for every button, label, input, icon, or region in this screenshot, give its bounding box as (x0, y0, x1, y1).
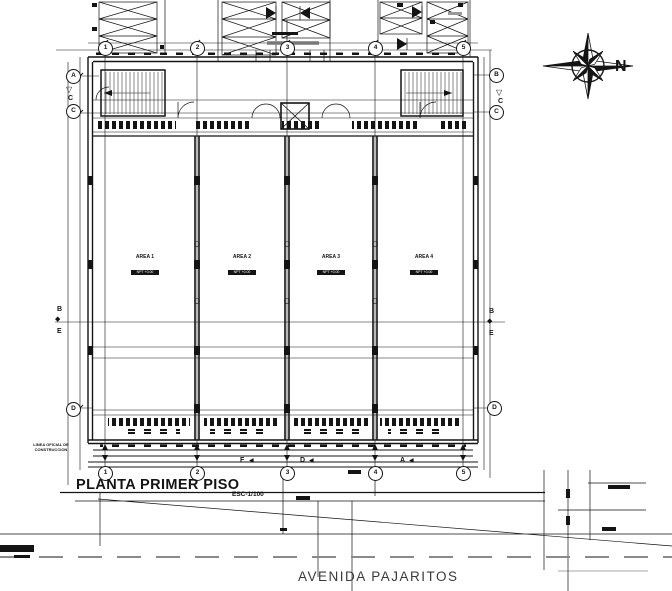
room-name: AREA 3 (309, 254, 353, 260)
plan-scale: ESC-1/100 (232, 491, 264, 498)
room-level-tag: NPT +0.00 (317, 270, 345, 275)
margin-note-line2: CONSTRUCCION (35, 447, 68, 452)
section-arrow-icon: ◀ (249, 458, 254, 465)
grid-bubble-label: 2 (196, 44, 200, 51)
grid-bubble-row-c-right: C (489, 105, 504, 120)
door-arcs (96, 87, 436, 118)
grid-bubble-label: 3 (286, 44, 290, 51)
grid-bubble-label: D (492, 404, 497, 411)
grid-bubble-row-d-left: D (66, 402, 81, 417)
grid-bubble-label: 5 (462, 469, 466, 476)
grid-bubble-top-2: 2 (190, 41, 205, 56)
section-letter-f: F (240, 457, 244, 464)
street-name: AVENIDA PAJARITOS (298, 569, 459, 584)
grid-bubble-label: D (71, 405, 76, 412)
grid-bubble-bottom-3: 3 (280, 466, 295, 481)
section-diamond-icon: ◆ (487, 318, 492, 325)
section-triangle-icon: ▽ (66, 86, 72, 94)
grid-bubble-label: 1 (104, 469, 108, 476)
grid-bubble-top-3: 3 (280, 41, 295, 56)
section-letter-e-right: E (489, 330, 494, 337)
grid-bubble-row-c-left: C (66, 104, 81, 119)
grid-bubble-label: 5 (462, 44, 466, 51)
section-arrow-icon: ◀ (409, 458, 414, 465)
grid-bubble-label: 2 (196, 469, 200, 476)
room-label-area-2: AREA 2 NPT +0.00 (220, 254, 264, 278)
floor-plan-sheet: 1 2 3 4 5 1 2 3 4 5 A C D B C D ▽ C ▽ C … (0, 0, 672, 591)
section-letter-d: D (300, 457, 305, 464)
grid-bubble-label: C (494, 108, 499, 115)
grid-bubble-top-4: 4 (368, 41, 383, 56)
grid-bubble-top-5: 5 (456, 41, 471, 56)
grid-bubble-bottom-5: 5 (456, 466, 471, 481)
grid-bubble-row-a: A (66, 69, 81, 84)
section-letter-e-left: E (57, 328, 62, 335)
section-letter-c-right: C (498, 98, 503, 105)
section-letter-c-left: C (68, 95, 73, 102)
stairs-right (401, 70, 463, 116)
margin-note: LINEA OFICIAL DE CONSTRUCCION (28, 443, 74, 452)
grid-bubble-row-b: B (489, 68, 504, 83)
room-label-area-1: AREA 1 NPT +0.00 (123, 254, 167, 278)
fixtures-hatch (96, 121, 468, 448)
room-name: AREA 2 (220, 254, 264, 260)
room-level-tag: NPT +0.00 (228, 270, 256, 275)
grid-bubble-label: A (71, 72, 76, 79)
stairs-left (101, 70, 165, 116)
grid-bubble-label: 3 (286, 469, 290, 476)
building-shell (88, 57, 478, 444)
room-label-area-4: AREA 4 NPT +0.00 (402, 254, 446, 278)
grid-bubble-label: C (71, 107, 76, 114)
room-name: AREA 1 (123, 254, 167, 260)
grid-bubble-top-1: 1 (98, 41, 113, 56)
grid-bubble-label: 4 (374, 469, 378, 476)
grid-bubble-bottom-4: 4 (368, 466, 383, 481)
room-level-tag: NPT +0.00 (410, 270, 438, 275)
grid-bubble-label: B (494, 71, 499, 78)
section-letter-a: A (400, 457, 405, 464)
room-level-tag: NPT +0.00 (131, 270, 159, 275)
plan-linework (0, 0, 672, 591)
room-name: AREA 4 (402, 254, 446, 260)
grid-bubble-row-d-right: D (487, 401, 502, 416)
grid-bubble-label: 1 (104, 44, 108, 51)
section-diamond-icon: ◆ (55, 316, 60, 323)
north-label: N (615, 58, 627, 76)
section-letter-b-right: B (489, 308, 494, 315)
front-steps (88, 450, 478, 467)
section-triangle-icon: ▽ (496, 89, 502, 97)
grid-bubble-label: 4 (374, 44, 378, 51)
room-label-area-3: AREA 3 NPT +0.00 (309, 254, 353, 278)
column-markers (88, 176, 478, 413)
section-letter-b-left: B (57, 306, 62, 313)
plan-title: PLANTA PRIMER PISO (76, 477, 240, 493)
section-arrow-icon: ◀ (309, 458, 314, 465)
